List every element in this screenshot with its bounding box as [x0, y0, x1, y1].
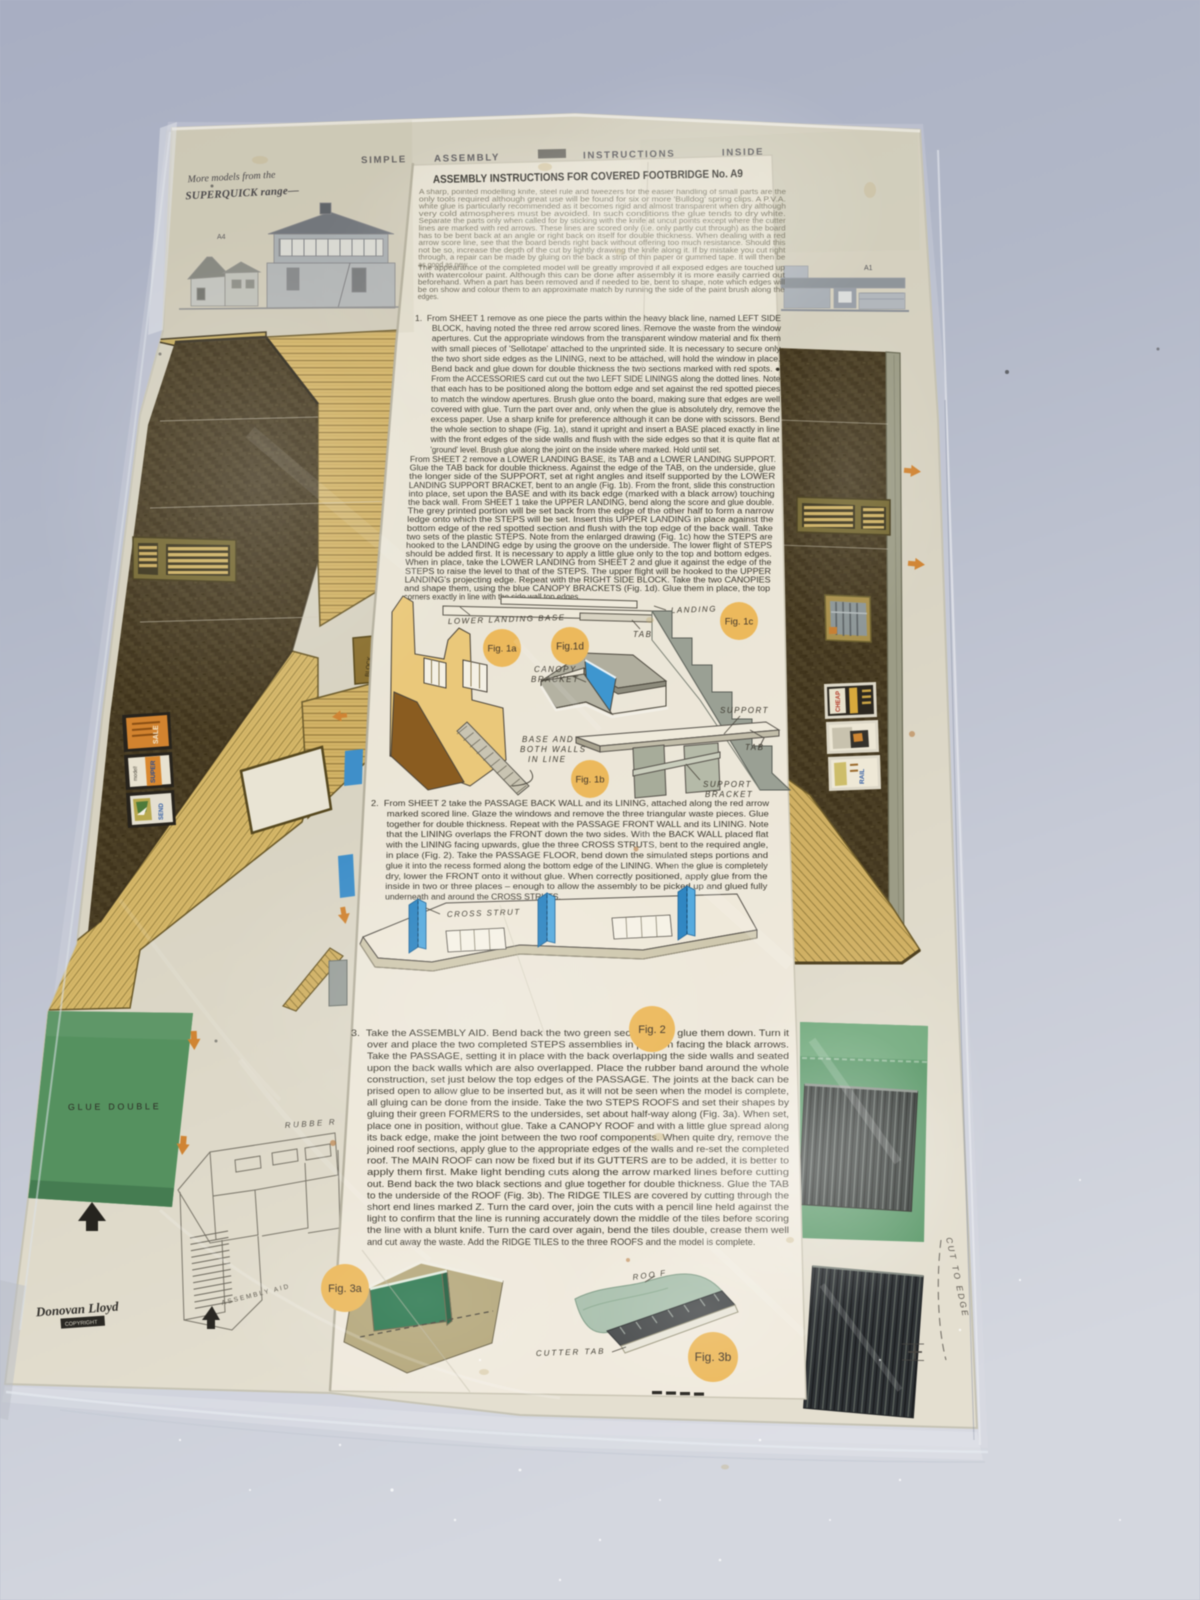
- svg-text:SUPER: SUPER: [150, 760, 157, 783]
- svg-text:TAB: TAB: [745, 743, 764, 752]
- svg-text:SUPPORT: SUPPORT: [703, 780, 752, 789]
- svg-text:marked scored line. Glaze the: marked scored line. Glaze the windows an…: [387, 808, 769, 818]
- svg-text:BOTH WALLS: BOTH WALLS: [520, 745, 586, 754]
- svg-text:BRACKET: BRACKET: [705, 790, 753, 799]
- svg-text:2. From SHEET 2 take the PASS: 2. From SHEET 2 take the PASSAGE BACK WA…: [371, 798, 770, 808]
- svg-text:model!: model!: [133, 766, 139, 781]
- svg-text:Fig. 1c: Fig. 1c: [725, 616, 754, 627]
- svg-text:LANDING: LANDING: [671, 604, 717, 615]
- svg-text:Fig. 1b: Fig. 1b: [575, 774, 604, 785]
- svg-text:SEND: SEND: [159, 803, 165, 820]
- svg-text:IN LINE: IN LINE: [528, 755, 567, 764]
- svg-text:Fig. 1a: Fig. 1a: [487, 643, 517, 654]
- svg-text:Fig.1d: Fig.1d: [556, 642, 584, 653]
- svg-text:SUPPORT: SUPPORT: [720, 706, 769, 715]
- svg-text:RAIL: RAIL: [859, 769, 866, 784]
- svg-text:GLUE DOUBLE: GLUE DOUBLE: [68, 1101, 161, 1112]
- svg-text:TAB: TAB: [633, 630, 652, 639]
- svg-text:CHEAP: CHEAP: [836, 691, 842, 712]
- svg-text:BASE AND: BASE AND: [522, 735, 574, 744]
- svg-text:SALE: SALE: [153, 725, 160, 744]
